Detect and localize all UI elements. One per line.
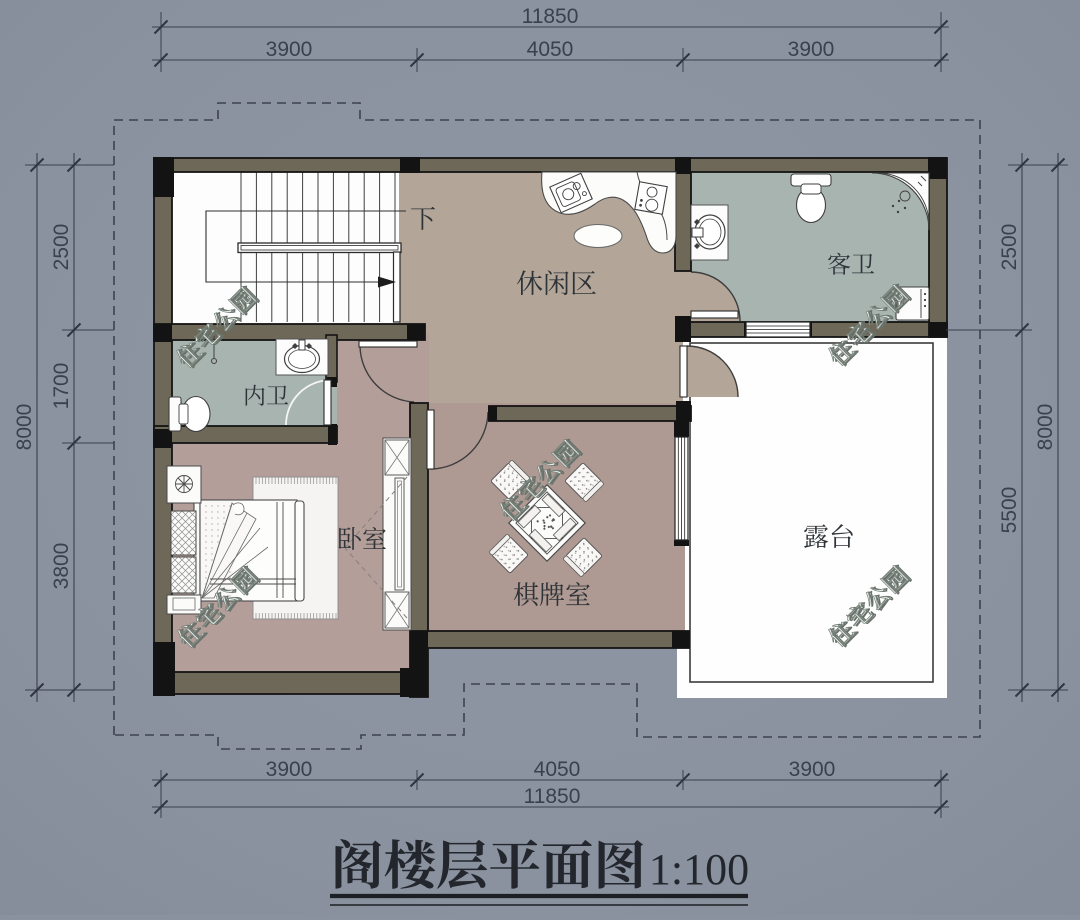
svg-text:4050: 4050 [527,38,574,61]
svg-text:11850: 11850 [522,5,579,28]
svg-text:8000: 8000 [1034,404,1057,451]
svg-text:3900: 3900 [788,38,835,61]
svg-text:1700: 1700 [50,363,73,410]
svg-text:11850: 11850 [524,785,581,808]
svg-text:3900: 3900 [266,38,313,61]
svg-text:3900: 3900 [266,758,313,781]
svg-text:2500: 2500 [998,224,1021,271]
svg-text:3900: 3900 [789,758,836,781]
svg-text:2500: 2500 [50,224,73,271]
svg-text:1:100: 1:100 [649,845,749,894]
svg-text:4050: 4050 [534,758,581,781]
svg-text:5500: 5500 [998,487,1021,534]
svg-text:3800: 3800 [50,543,73,590]
svg-text:8000: 8000 [13,404,36,451]
